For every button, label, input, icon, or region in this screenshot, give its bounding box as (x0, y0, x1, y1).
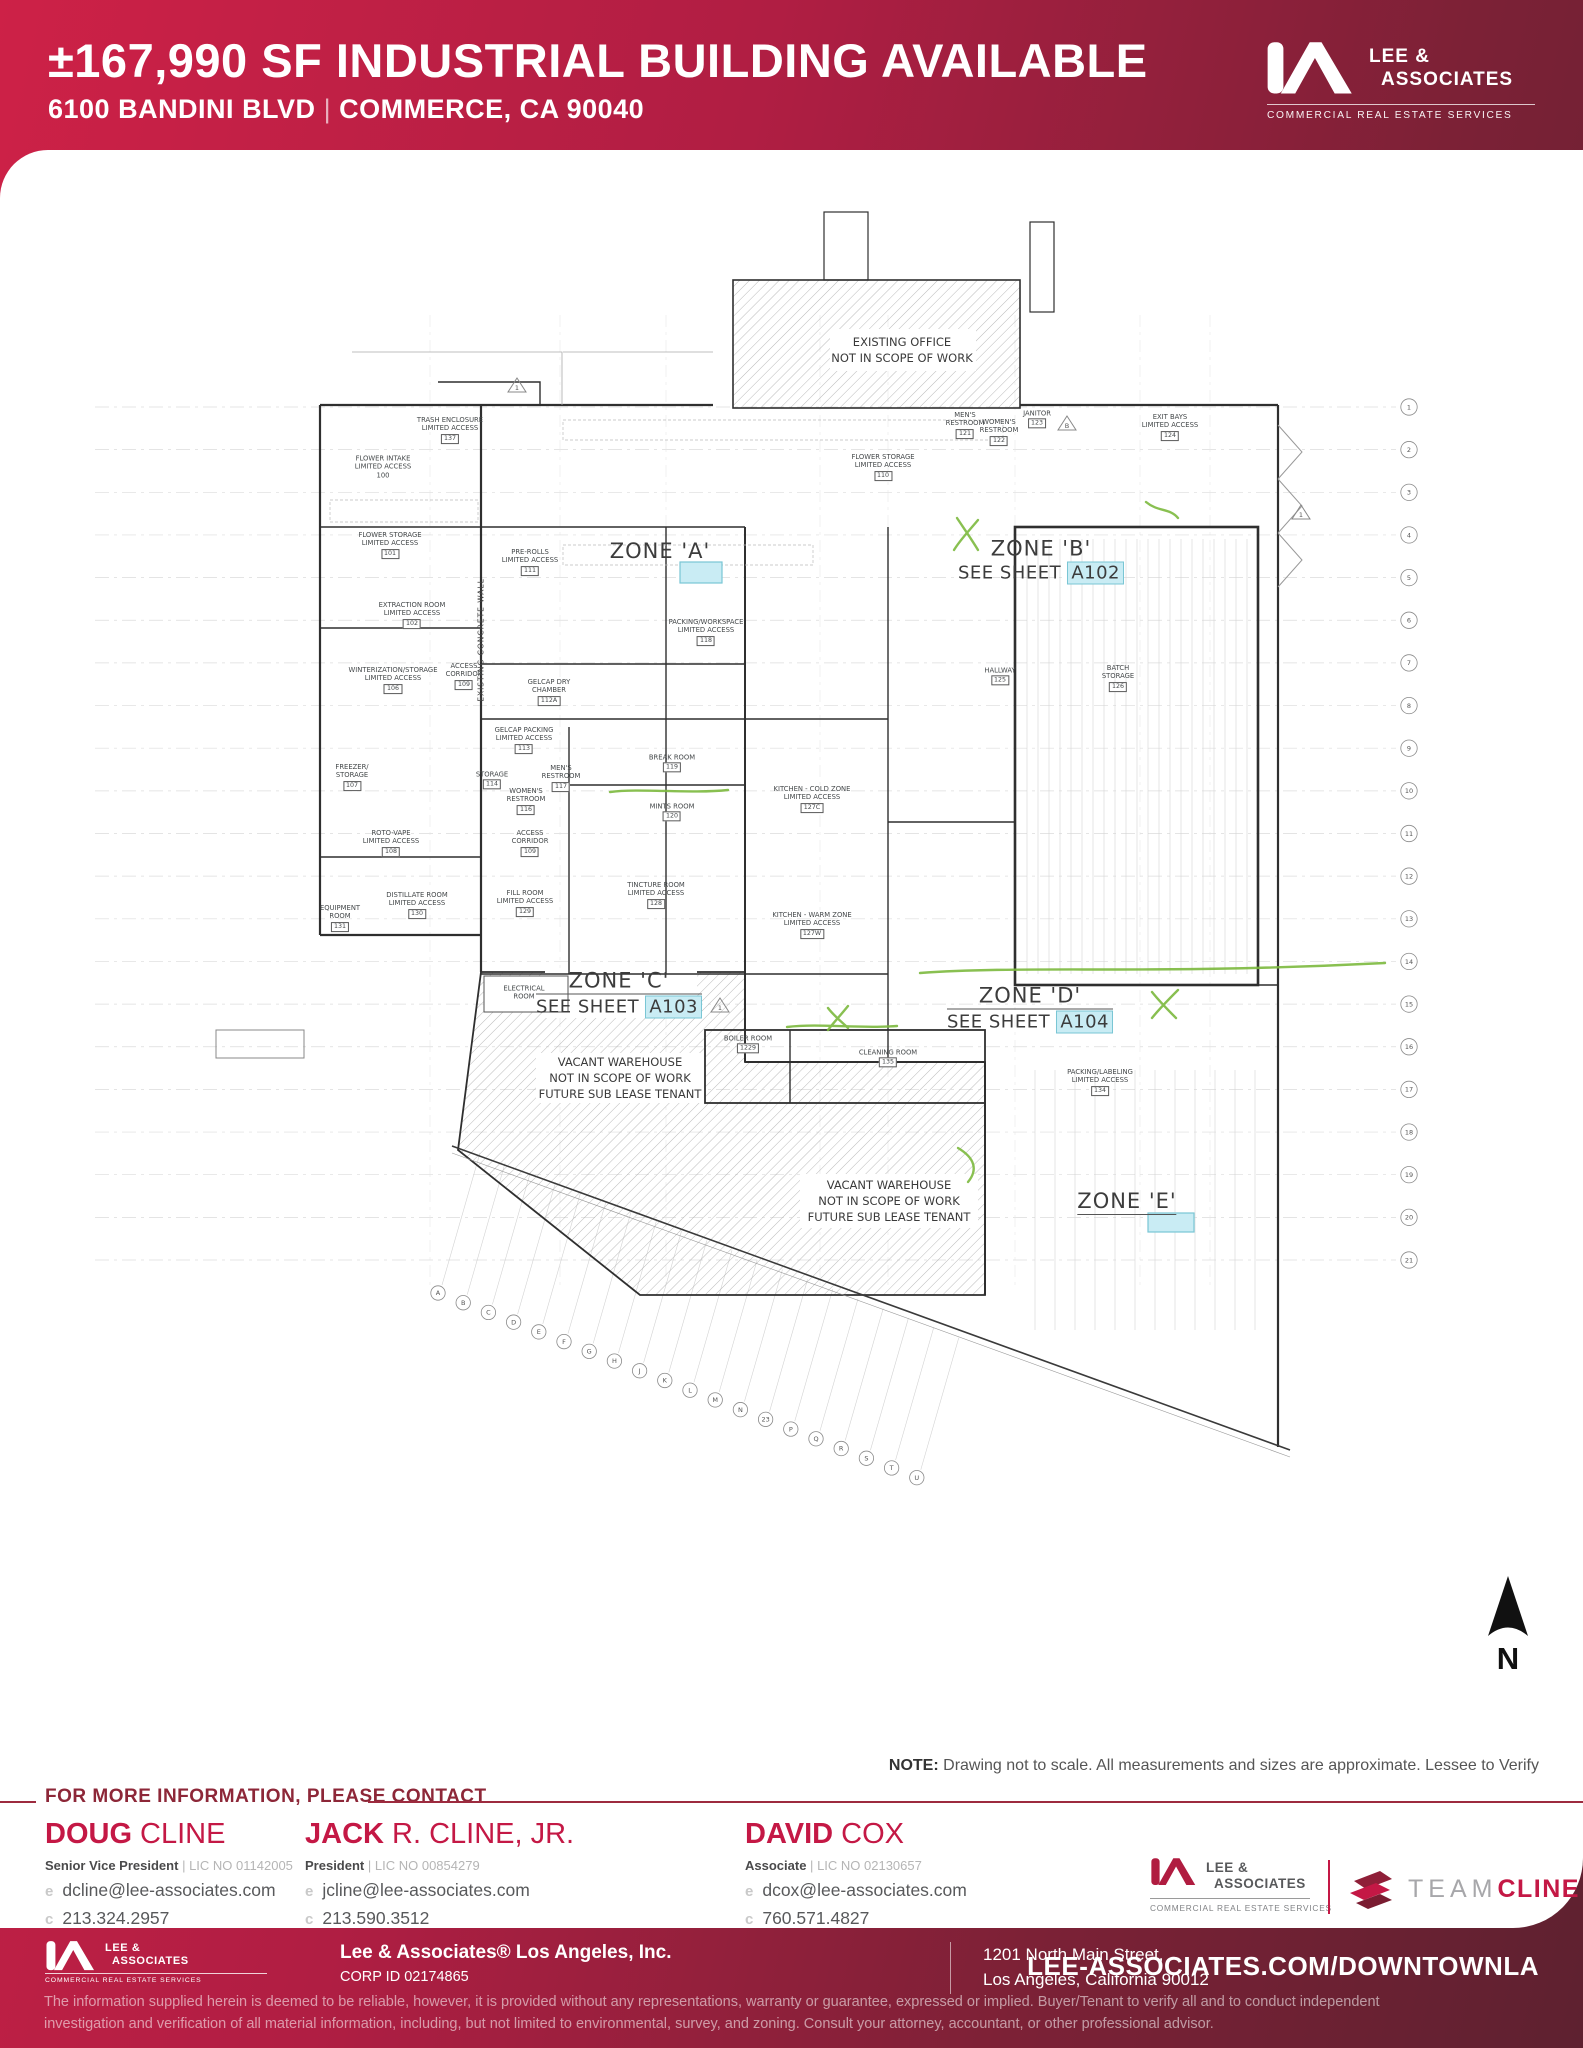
footer-company: Lee & Associates® Los Angeles, Inc. CORP… (340, 1942, 671, 1985)
svg-text:14: 14 (1405, 958, 1413, 966)
disclaimer-note: NOTE: Drawing not to scale. All measurem… (889, 1757, 1539, 1775)
sheet-ref-a104: A104 (1056, 1011, 1113, 1034)
contact-card-david-cox: DAVID COX Associate | LIC NO 02130657 ed… (745, 1818, 1005, 1929)
north-arrow-icon (1482, 1574, 1534, 1638)
sheet-ref-a103: A103 (645, 996, 702, 1019)
contact-title: Associate | LIC NO 02130657 (745, 1858, 1005, 1873)
svg-text:3: 3 (1407, 489, 1411, 497)
existing-concrete-wall-label: EXISTING CONCRETE WALL (477, 578, 486, 702)
zone-b-label: ZONE 'B' SEE SHEET A102 (958, 537, 1124, 584)
svg-text:17: 17 (1405, 1086, 1413, 1094)
email-prefix-icon: e (745, 1883, 753, 1900)
zone-c-label: ZONE 'C' SEE SHEET A103 (536, 969, 702, 1018)
email-prefix-icon: e (45, 1883, 53, 1900)
email-prefix-icon: e (305, 1883, 313, 1900)
svg-text:C: C (486, 1309, 491, 1317)
svg-text:23: 23 (761, 1416, 769, 1424)
svg-text:S: S (864, 1454, 868, 1462)
svg-text:U: U (914, 1474, 919, 1482)
svg-text:16: 16 (1405, 1043, 1413, 1051)
contact-phone[interactable]: c213.590.3512 (305, 1908, 565, 1929)
svg-text:1: 1 (1299, 511, 1303, 519)
contact-name: JACK R. CLINE, JR. (305, 1818, 565, 1851)
svg-text:T: T (889, 1464, 894, 1472)
north-label: N (1482, 1641, 1534, 1677)
svg-text:F: F (562, 1338, 566, 1346)
teamcline-building-icon (1346, 1866, 1400, 1912)
footer-website-link[interactable]: LEE-ASSOCIATES.COM/DOWNTOWNLA (1027, 1951, 1539, 1982)
existing-office-label: EXISTING OFFICE NOT IN SCOPE OF WORK (831, 334, 973, 366)
contact-heading: FOR MORE INFORMATION, PLEASE CONTACT (45, 1786, 487, 1808)
contact-title: President | LIC NO 00854279 (305, 1858, 565, 1873)
grid-bubbles: 123456789101112131415161718192021ABCDEFG… (431, 378, 1417, 1485)
svg-text:7: 7 (1407, 659, 1411, 667)
svg-text:G: G (587, 1348, 592, 1356)
svg-text:8: 8 (1407, 702, 1411, 710)
phone-prefix-icon: c (305, 1911, 313, 1928)
contact-email[interactable]: ejcline@lee-associates.com (305, 1880, 565, 1901)
svg-text:13: 13 (1405, 915, 1413, 923)
zone-e-label: ZONE 'E' (1077, 1189, 1176, 1215)
contact-phone[interactable]: c760.571.4827 (745, 1908, 1005, 1929)
svg-text:10: 10 (1405, 787, 1413, 795)
svg-text:9: 9 (1407, 745, 1411, 753)
vacant-warehouse-label-1: VACANT WAREHOUSE NOT IN SCOPE OF WORK FU… (539, 1054, 702, 1102)
svg-text:20: 20 (1405, 1214, 1413, 1222)
phone-prefix-icon: c (45, 1911, 53, 1928)
svg-text:1: 1 (1407, 403, 1411, 411)
contact-card-doug-cline: DOUG CLINE Senior Vice President | LIC N… (45, 1818, 305, 1929)
svg-text:19: 19 (1405, 1171, 1413, 1179)
contact-name: DAVID COX (745, 1818, 1005, 1851)
svg-text:L: L (688, 1386, 692, 1394)
svg-text:18: 18 (1405, 1128, 1413, 1136)
footer-disclaimer-line1: The information supplied herein is deeme… (44, 1994, 1380, 2010)
svg-text:6: 6 (1407, 617, 1411, 625)
svg-text:E: E (537, 1328, 541, 1336)
svg-text:M: M (712, 1396, 718, 1404)
logo-separator (1328, 1860, 1330, 1914)
footer-lee-logo: LEE & ASSOCIATES COMMERCIAL REAL ESTATE … (45, 1941, 285, 1976)
contact-card-jack-cline: JACK R. CLINE, JR. President | LIC NO 00… (305, 1818, 565, 1929)
la-logo-icon (45, 1941, 97, 1971)
svg-text:B: B (1065, 422, 1069, 430)
heading-rule-left (0, 1801, 36, 1803)
phone-prefix-icon: c (745, 1911, 753, 1928)
north-arrow: N (1482, 1574, 1534, 1677)
lee-associates-logo-small: LEE & ASSOCIATES COMMERCIAL REAL ESTATE … (1150, 1858, 1315, 1891)
footer-disclaimer-line2: investigation and verification of all ma… (44, 2016, 1214, 2032)
svg-text:11: 11 (1405, 830, 1413, 838)
svg-text:15: 15 (1405, 1000, 1413, 1008)
contact-title: Senior Vice President | LIC NO 01142005 (45, 1858, 305, 1873)
svg-text:K: K (663, 1377, 668, 1385)
zone-a-label: ZONE 'A' (610, 539, 710, 563)
svg-text:21: 21 (1405, 1256, 1413, 1264)
zone-a-highlight-swatch (680, 562, 722, 583)
floor-plan-drawing: 123456789101112131415161718192021ABCDEFG… (0, 0, 1583, 2048)
svg-text:4: 4 (1407, 531, 1411, 539)
contact-email[interactable]: edcline@lee-associates.com (45, 1880, 305, 1901)
teamcline-logo: TEAMCLINE (1346, 1866, 1400, 1917)
la-logo-icon (1150, 1858, 1198, 1886)
svg-text:B: B (461, 1299, 465, 1307)
svg-text:1: 1 (515, 384, 519, 392)
svg-text:12: 12 (1405, 872, 1413, 880)
svg-text:J: J (638, 1367, 641, 1375)
svg-text:1: 1 (718, 1004, 722, 1012)
contact-name: DOUG CLINE (45, 1818, 305, 1851)
vacant-warehouse-label-2: VACANT WAREHOUSE NOT IN SCOPE OF WORK FU… (808, 1177, 971, 1225)
zone-e-highlight-swatch (1148, 1213, 1194, 1232)
svg-text:Q: Q (813, 1435, 818, 1443)
svg-text:H: H (612, 1357, 617, 1365)
svg-text:2: 2 (1407, 446, 1411, 454)
svg-text:N: N (738, 1406, 743, 1414)
svg-text:R: R (839, 1445, 844, 1453)
svg-text:P: P (789, 1425, 793, 1433)
svg-text:D: D (511, 1318, 516, 1326)
flyer-page: ±167,990 SF INDUSTRIAL BUILDING AVAILABL… (0, 0, 1583, 2048)
zone-d-label: ZONE 'D' SEE SHEET A104 (947, 984, 1113, 1033)
svg-text:A: A (436, 1289, 441, 1297)
svg-text:5: 5 (1407, 574, 1411, 582)
footer-divider (950, 1942, 951, 1994)
heading-rule-right (368, 1801, 1583, 1803)
contact-email[interactable]: edcox@lee-associates.com (745, 1880, 1005, 1901)
contact-phone[interactable]: c213.324.2957 (45, 1908, 305, 1929)
sheet-ref-a102: A102 (1067, 562, 1124, 585)
